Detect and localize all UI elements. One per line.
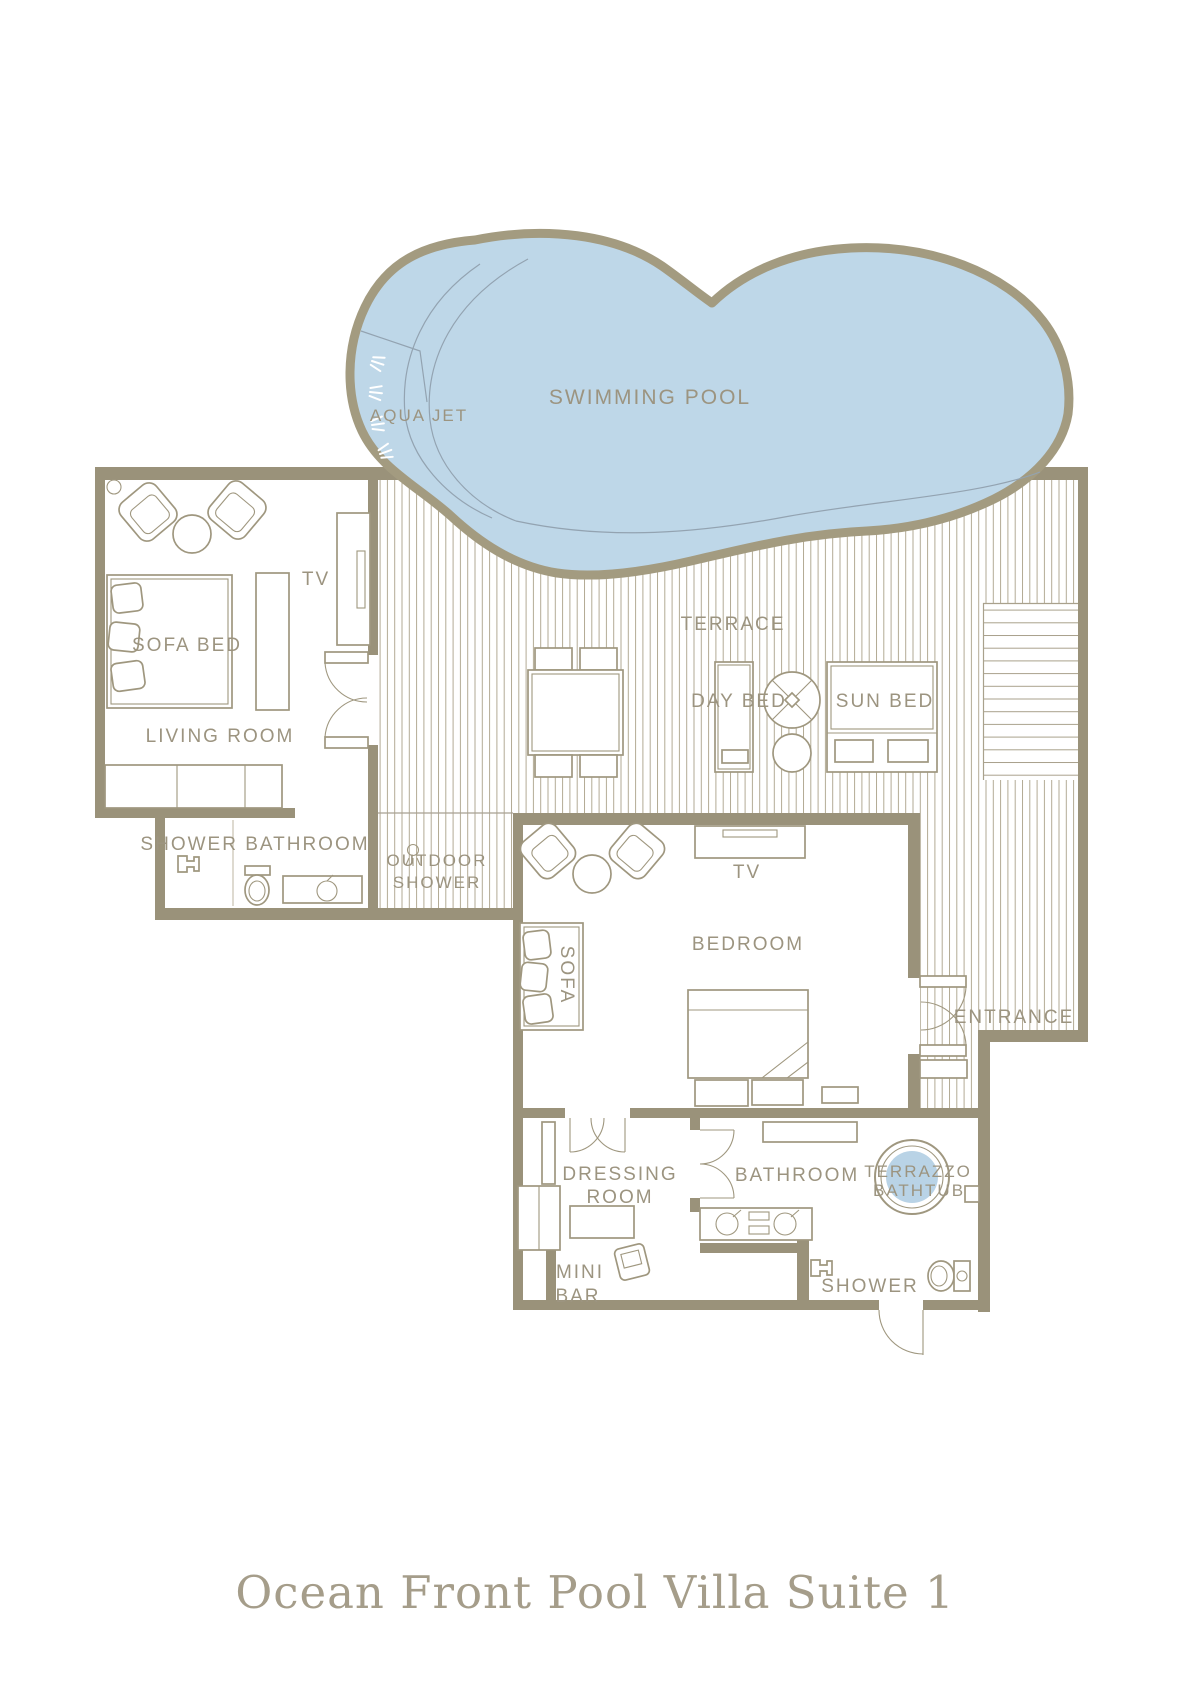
- bedroom-tv-console-icon: [695, 826, 805, 858]
- armchair-icon: [204, 477, 270, 543]
- day-bed-icon: [715, 662, 753, 772]
- sink-icon: [283, 875, 362, 903]
- sun-bed-icon: [827, 662, 937, 772]
- armchair-icon: [605, 819, 668, 883]
- minibar-fridge-icon: [614, 1243, 651, 1281]
- tv-console-icon: [256, 573, 289, 710]
- dressing-room-label-line2: ROOM: [586, 1187, 653, 1208]
- outdoor-shower-label-line1: OUTDOOR: [387, 851, 488, 870]
- shower-head-icon: [811, 1260, 832, 1276]
- day-bed-label: DAY BED: [691, 691, 787, 712]
- sideboard-counter-icon: [105, 765, 282, 808]
- entrance-label: ENTRANCE: [954, 1007, 1075, 1028]
- bathroom: [700, 1122, 979, 1291]
- dressing-room-label-line1: DRESSING: [562, 1164, 677, 1185]
- coffee-table-icon: [173, 515, 211, 553]
- terrace-label: TERRACE: [681, 614, 786, 635]
- terrazzo-bathtub-label-line2: BATHTUB: [873, 1181, 965, 1200]
- vanity-sinks-icon: [700, 1208, 812, 1240]
- shower-room-label: SHOWER: [821, 1276, 919, 1297]
- aqua-jet-label: AQUA JET: [370, 406, 468, 425]
- side-table-icon: [773, 734, 811, 772]
- bedroom-label: BEDROOM: [692, 934, 804, 955]
- bedroom-sofa-label: SOFA: [556, 946, 577, 1005]
- floor-plan-svg: SWIMMING POOL AQUA JET TERRACE DAY BED S…: [0, 0, 1190, 1684]
- terrazzo-bathtub-label-line1: TERRAZZO: [864, 1162, 972, 1181]
- bedside-table-icon: [822, 1087, 858, 1103]
- terrace-door: [325, 652, 368, 748]
- bed-icon: [688, 990, 808, 1078]
- terrace-furniture: [528, 648, 937, 777]
- tv-cabinet-icon: [337, 513, 370, 645]
- armchair-icon: [516, 819, 579, 883]
- bathroom-label: BATHROOM: [735, 1165, 859, 1186]
- bed-bench-icon: [695, 1080, 748, 1106]
- sofa-bed-label: SOFA BED: [132, 635, 242, 656]
- entrance-step: [920, 1060, 967, 1078]
- plan-title: Ocean Front Pool Villa Suite 1: [235, 1566, 954, 1619]
- rear-exit-door: [879, 1310, 923, 1355]
- bathroom-door: [700, 1130, 734, 1198]
- armchair-icon: [115, 479, 181, 545]
- shower-head-icon: [178, 856, 199, 872]
- outdoor-shower-label-line2: SHOWER: [393, 873, 482, 892]
- bathroom-shelf-icon: [763, 1122, 857, 1142]
- mini-bar-label-line2: BAR: [555, 1286, 600, 1307]
- sun-bed-label: SUN BED: [836, 691, 934, 712]
- wardrobe-icon: [542, 1122, 555, 1184]
- shower-bathroom-label: SHOWER BATHROOM: [140, 834, 369, 855]
- living-room-label: LIVING ROOM: [146, 726, 295, 747]
- swimming-pool-label: SWIMMING POOL: [549, 386, 751, 409]
- toilet-icon: [928, 1261, 970, 1291]
- terrace-stairs: [983, 603, 1078, 780]
- living-tv-label: TV: [302, 569, 330, 590]
- shower-bathroom: [178, 820, 362, 906]
- mini-bar-label-line1: MINI: [556, 1262, 604, 1283]
- bed-bench-icon: [752, 1080, 803, 1105]
- floor-plan-page: SWIMMING POOL AQUA JET TERRACE DAY BED S…: [0, 0, 1190, 1684]
- coffee-table-icon: [573, 855, 611, 893]
- dresser-icon: [570, 1206, 634, 1238]
- bedroom-tv-label: TV: [733, 862, 761, 883]
- decor-pot-icon: [107, 480, 121, 494]
- wardrobe-icon: [518, 1186, 560, 1250]
- dressing-room-door: [570, 1118, 625, 1152]
- toilet-icon: [245, 866, 270, 905]
